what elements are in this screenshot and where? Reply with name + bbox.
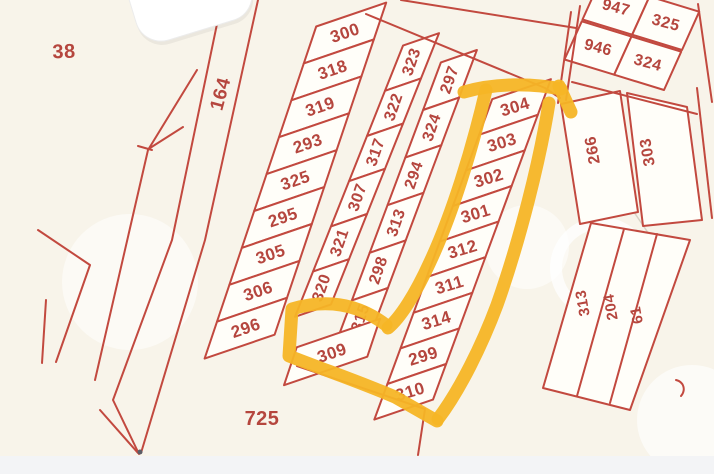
cadastral-map-svg: 3003183192933252953053062963233223173073…: [0, 0, 714, 474]
parcel-label-38: 38: [52, 41, 76, 64]
page-background-strip: [0, 456, 714, 474]
vertex-dot: [138, 450, 143, 455]
highlight-top-bar: [464, 85, 561, 92]
cadastral-map-photo: 3003183192933252953053062963233223173073…: [0, 0, 714, 474]
parcel-label-61: 61: [627, 305, 647, 325]
parcel-label-725: 725: [245, 408, 280, 430]
